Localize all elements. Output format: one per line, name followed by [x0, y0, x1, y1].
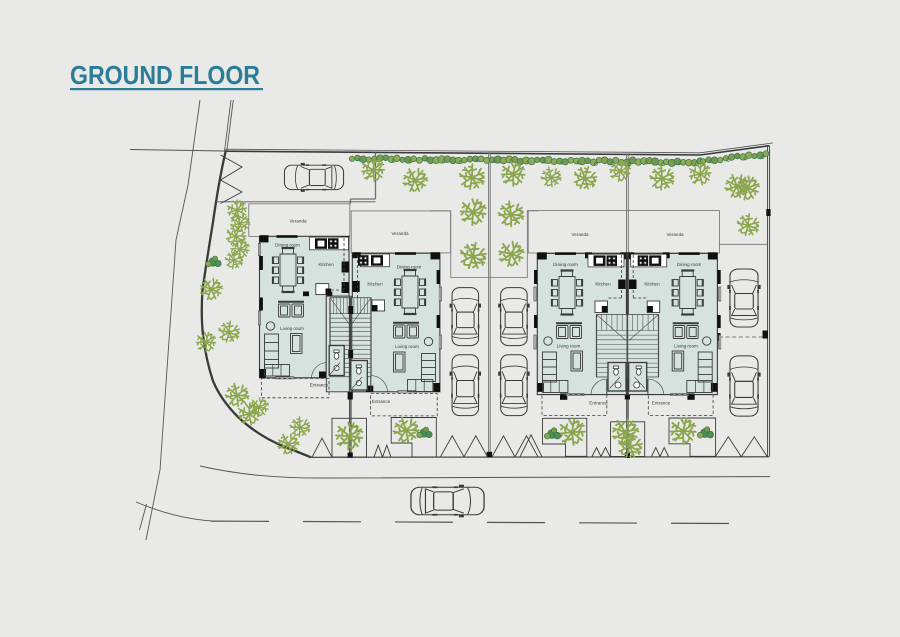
svg-text:Veranda: Veranda — [666, 232, 684, 237]
svg-text:Dining room: Dining room — [397, 265, 422, 270]
svg-text:Entrance: Entrance — [652, 400, 671, 405]
svg-text:Veranda: Veranda — [391, 231, 409, 236]
svg-text:Kitchen: Kitchen — [318, 262, 334, 267]
svg-text:Dining room: Dining room — [677, 262, 702, 267]
svg-text:Living room: Living room — [395, 344, 419, 349]
svg-text:Living room: Living room — [280, 326, 304, 331]
svg-text:Kitchen: Kitchen — [595, 282, 611, 287]
svg-text:Living room: Living room — [674, 344, 698, 349]
svg-text:Kitchen: Kitchen — [644, 282, 660, 287]
svg-text:Dining room: Dining room — [275, 242, 300, 247]
svg-text:Entrance: Entrance — [589, 400, 608, 405]
svg-text:Veranda: Veranda — [571, 232, 589, 237]
svg-text:Entrance: Entrance — [372, 399, 391, 404]
svg-text:Dining room: Dining room — [553, 262, 578, 267]
svg-text:GROUND FLOOR: GROUND FLOOR — [70, 60, 260, 90]
svg-text:Veranda: Veranda — [289, 219, 307, 224]
svg-text:Kitchen: Kitchen — [367, 282, 383, 287]
svg-text:Entrance: Entrance — [310, 383, 329, 388]
svg-text:Living room: Living room — [557, 344, 581, 349]
